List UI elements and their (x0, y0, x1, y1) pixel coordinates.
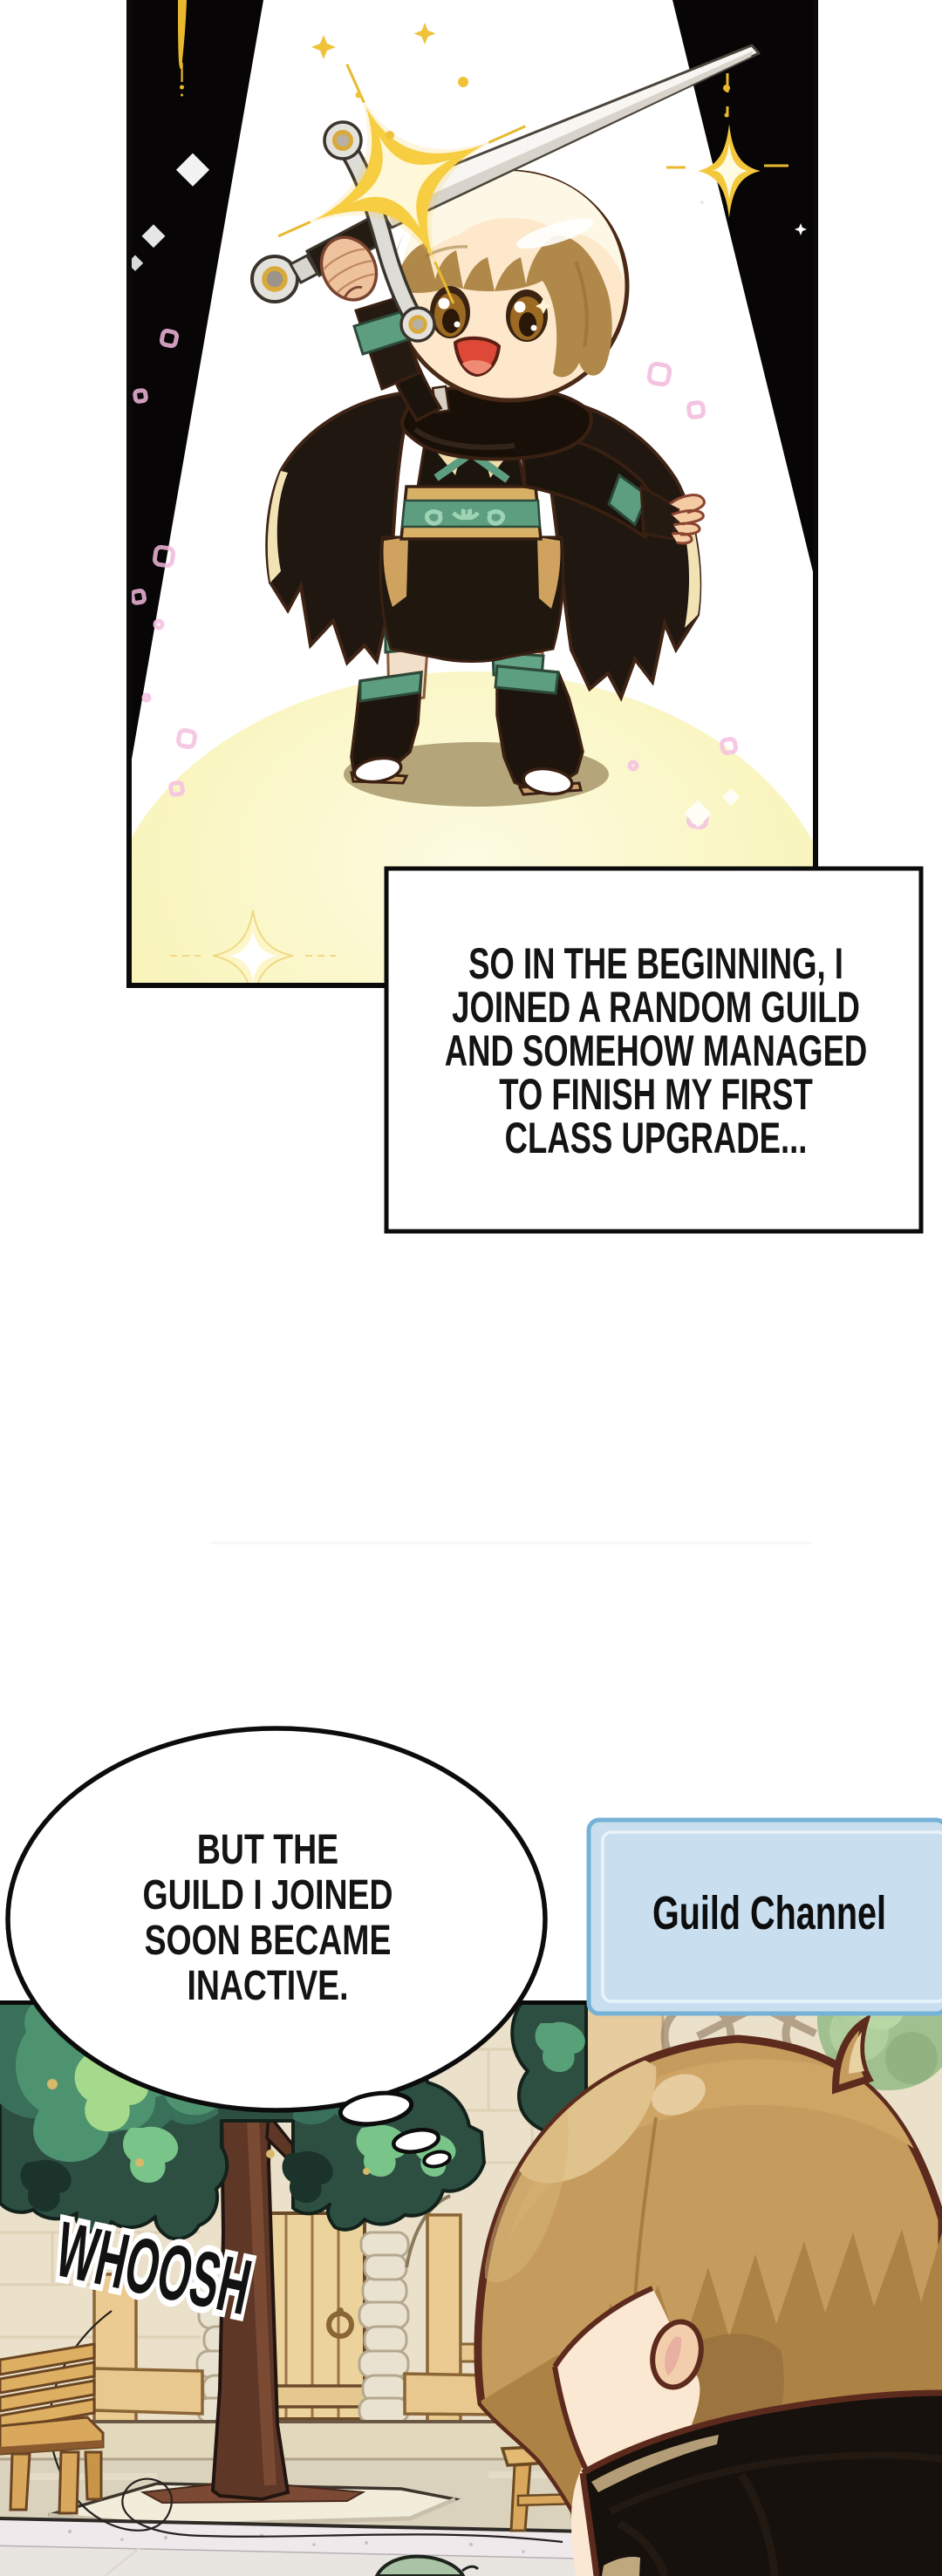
svg-text:Guild Channel: Guild Channel (652, 1887, 886, 1939)
svg-text:SOON BECAME: SOON BECAME (145, 1918, 392, 1965)
svg-text:TO FINISH MY FIRST: TO FINISH MY FIRST (499, 1070, 813, 1119)
svg-text:AND SOMEHOW MANAGED: AND SOMEHOW MANAGED (445, 1026, 868, 1075)
svg-text:BUT THE: BUT THE (197, 1827, 338, 1874)
svg-text:CLASS UPGRADE...: CLASS UPGRADE... (505, 1114, 808, 1162)
svg-text:GUILD I JOINED: GUILD I JOINED (143, 1872, 393, 1919)
svg-text:JOINED A RANDOM GUILD: JOINED A RANDOM GUILD (452, 983, 860, 1032)
svg-text:SO IN THE BEGINNING, I: SO IN THE BEGINNING, I (468, 939, 843, 988)
svg-text:INACTIVE.: INACTIVE. (187, 1963, 348, 2010)
